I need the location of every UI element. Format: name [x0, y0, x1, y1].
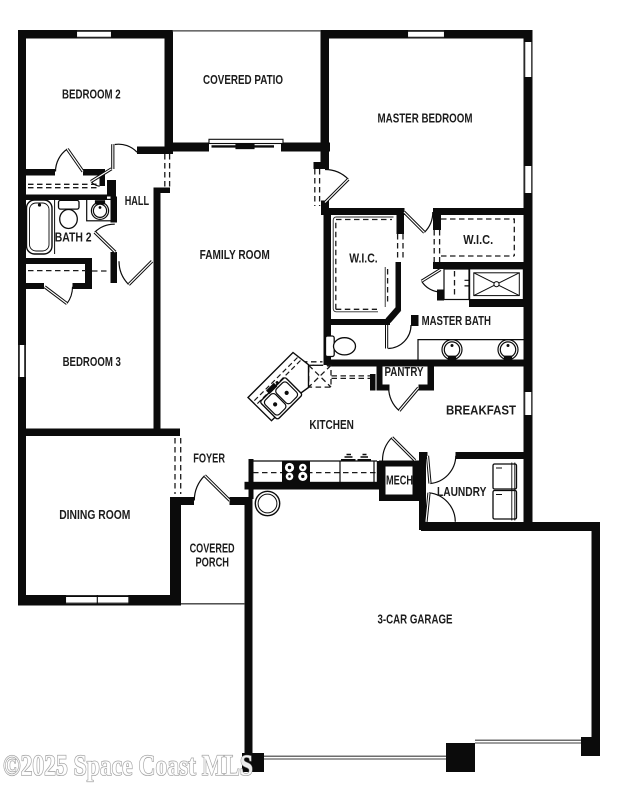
- svg-text:3-CAR GARAGE: 3-CAR GARAGE: [378, 613, 453, 627]
- svg-text:W.I.C.: W.I.C.: [349, 252, 378, 266]
- svg-text:COVERED PATIO: COVERED PATIO: [203, 73, 283, 87]
- svg-text:PORCH: PORCH: [196, 556, 230, 570]
- svg-text:FAMILY ROOM: FAMILY ROOM: [200, 248, 270, 262]
- svg-text:COVERED: COVERED: [190, 542, 235, 556]
- svg-text:MASTER BEDROOM: MASTER BEDROOM: [378, 112, 473, 126]
- svg-text:LAUNDRY: LAUNDRY: [437, 485, 487, 499]
- svg-text:BEDROOM 3: BEDROOM 3: [63, 355, 121, 369]
- svg-text:DINING ROOM: DINING ROOM: [59, 508, 130, 522]
- svg-text:BEDROOM 2: BEDROOM 2: [62, 88, 121, 102]
- svg-text:PANTRY: PANTRY: [385, 365, 425, 379]
- svg-text:FOYER: FOYER: [193, 452, 225, 466]
- svg-text:©2025 Space Coast MLS: ©2025 Space Coast MLS: [3, 749, 253, 782]
- svg-text:W.I.C.: W.I.C.: [463, 233, 493, 247]
- svg-text:HALL: HALL: [125, 194, 150, 208]
- svg-text:MASTER BATH: MASTER BATH: [422, 314, 491, 328]
- svg-text:BREAKFAST: BREAKFAST: [446, 403, 516, 417]
- svg-text:KITCHEN: KITCHEN: [309, 418, 354, 432]
- svg-text:MECH: MECH: [386, 474, 413, 488]
- svg-text:BATH 2: BATH 2: [55, 230, 92, 244]
